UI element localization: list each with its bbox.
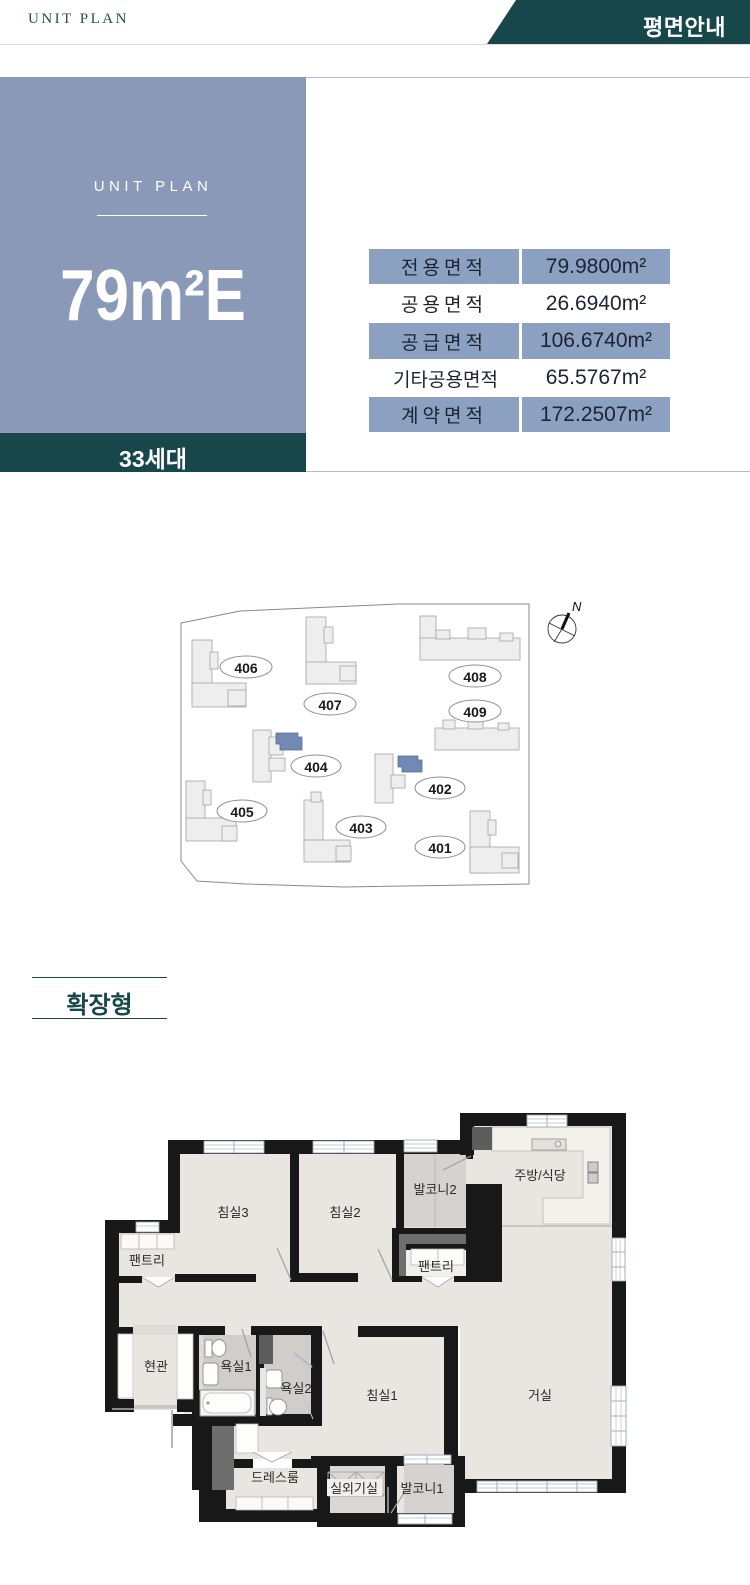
svg-text:407: 407	[318, 697, 342, 713]
svg-text:406: 406	[234, 660, 258, 676]
svg-text:침실3: 침실3	[217, 1205, 248, 1220]
svg-text:발코니1: 발코니1	[400, 1481, 443, 1496]
svg-text:409: 409	[463, 704, 487, 720]
svg-text:404: 404	[304, 759, 328, 775]
svg-text:침실1: 침실1	[366, 1388, 397, 1403]
svg-text:거실: 거실	[528, 1388, 552, 1403]
svg-text:발코니2: 발코니2	[413, 1182, 456, 1197]
svg-text:N: N	[572, 599, 582, 614]
svg-text:욕실1: 욕실1	[220, 1359, 251, 1374]
svg-text:팬트리: 팬트리	[418, 1259, 454, 1274]
svg-text:팬트리: 팬트리	[129, 1253, 165, 1268]
svg-text:현관: 현관	[144, 1359, 168, 1374]
svg-text:주방/식당: 주방/식당	[514, 1168, 565, 1183]
svg-text:405: 405	[230, 804, 254, 820]
svg-text:408: 408	[463, 669, 487, 685]
svg-text:드레스룸: 드레스룸	[251, 1470, 299, 1485]
svg-text:402: 402	[428, 781, 452, 797]
svg-text:401: 401	[428, 840, 452, 856]
svg-text:실외기실: 실외기실	[330, 1481, 378, 1496]
svg-text:403: 403	[349, 820, 373, 836]
svg-text:침실2: 침실2	[329, 1205, 360, 1220]
svg-text:욕실2: 욕실2	[280, 1381, 311, 1396]
